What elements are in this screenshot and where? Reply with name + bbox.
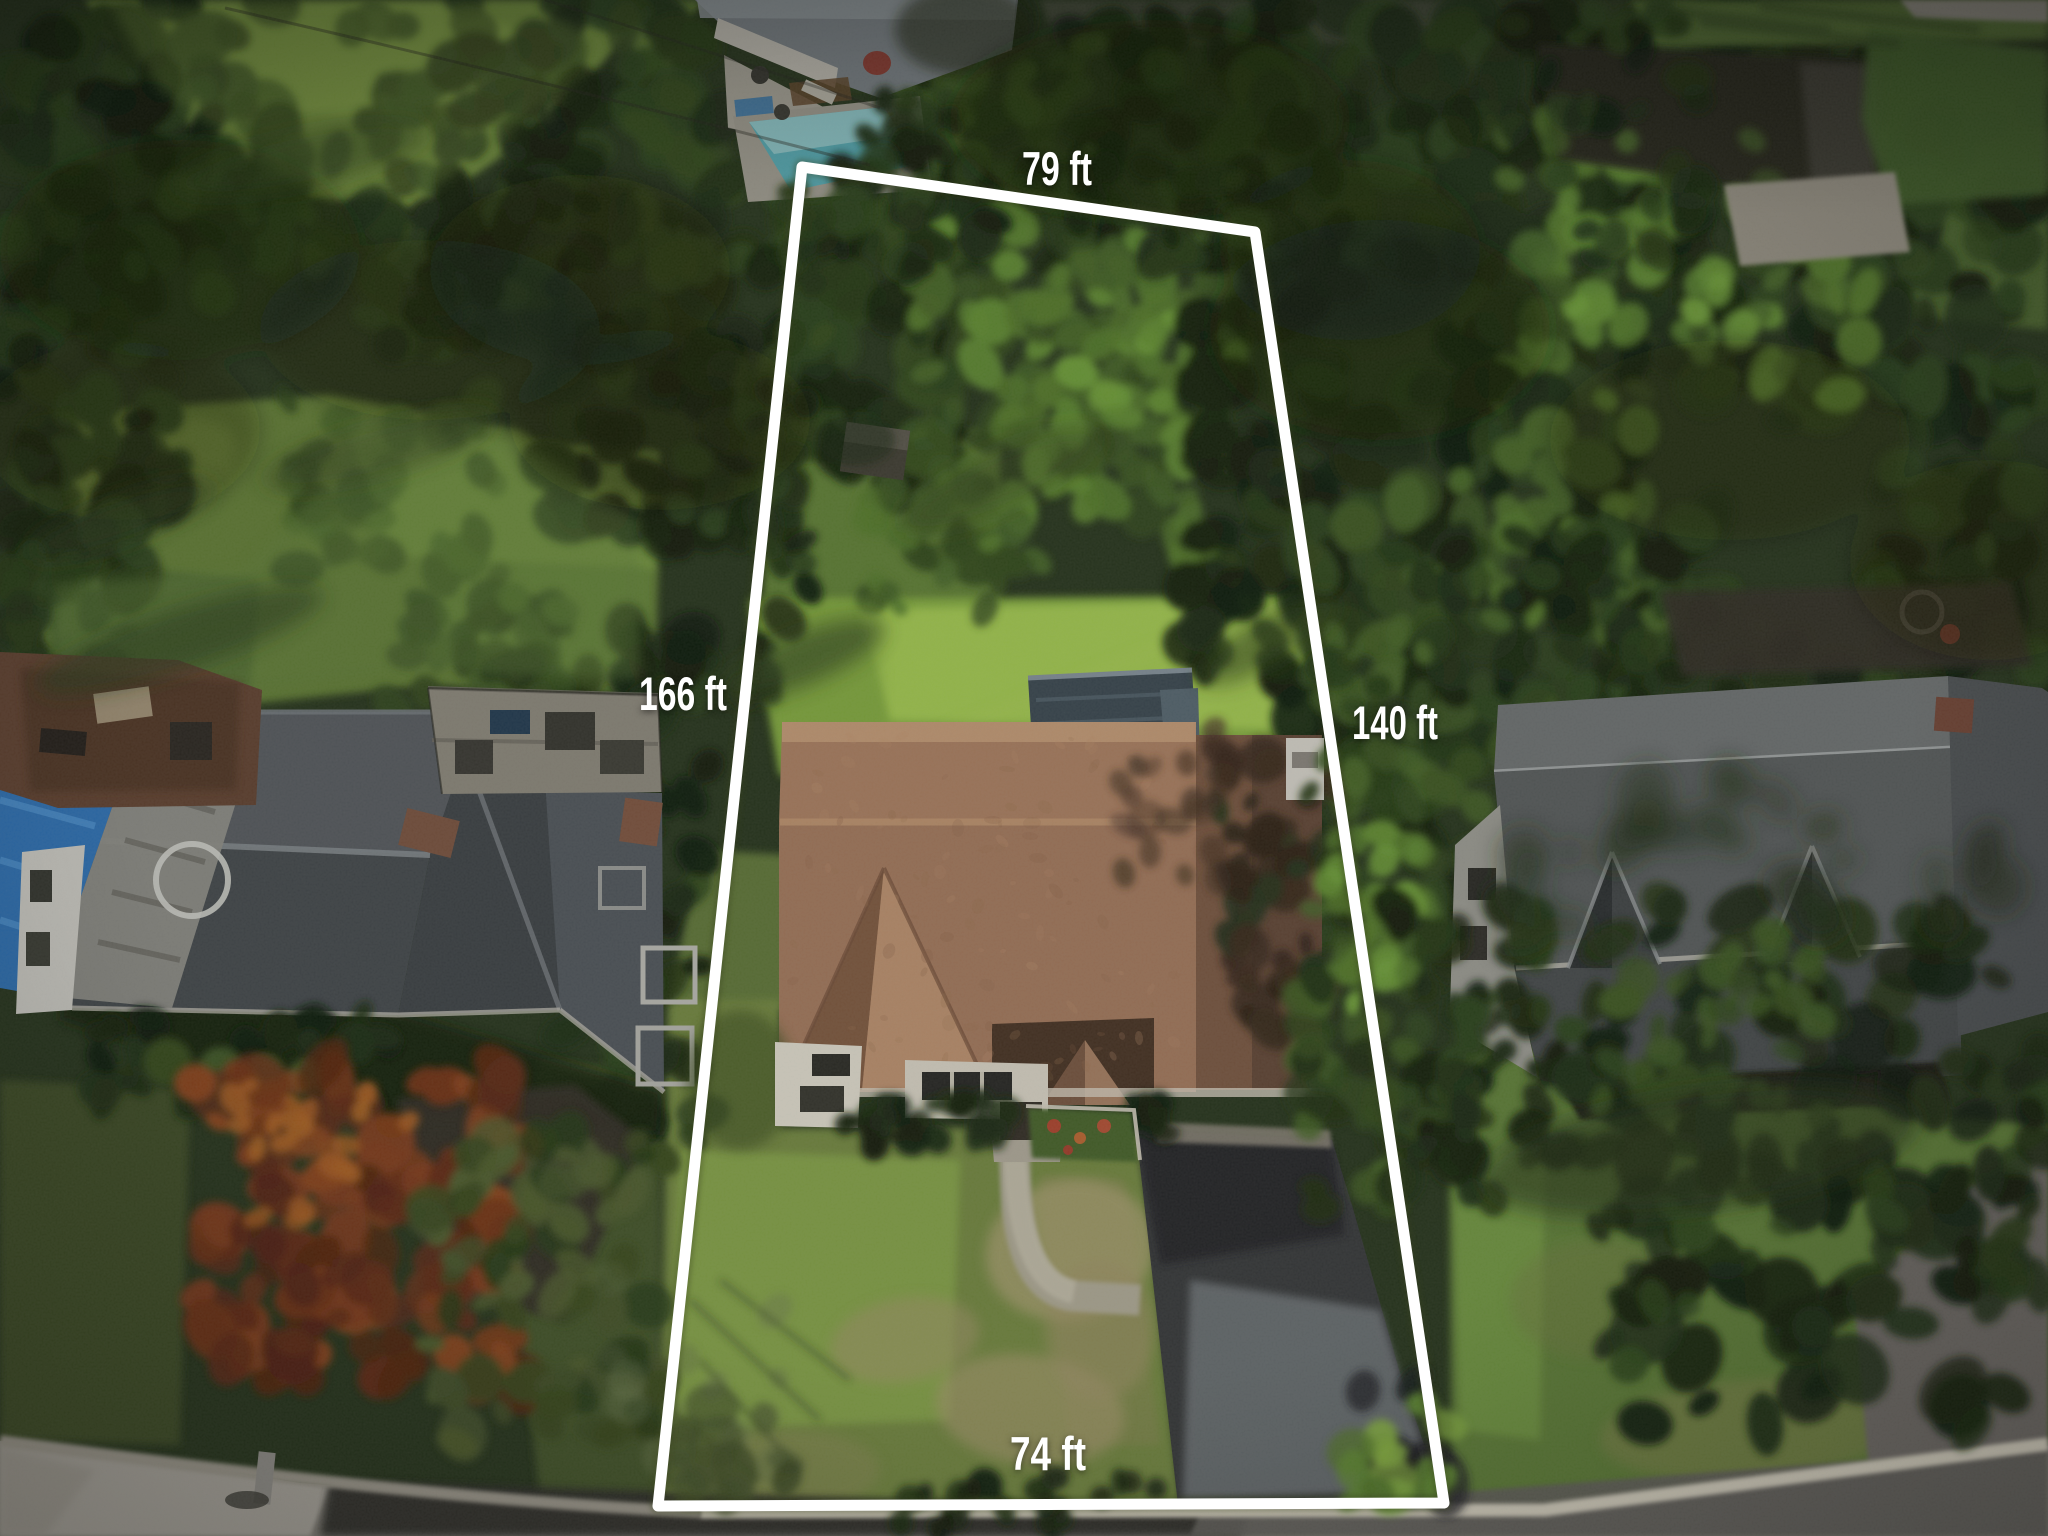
svg-text:140 ft: 140 ft (1352, 696, 1438, 749)
svg-text:166 ft: 166 ft (639, 667, 727, 720)
svg-text:79 ft: 79 ft (1022, 142, 1092, 195)
svg-text:74 ft: 74 ft (1010, 1427, 1086, 1480)
